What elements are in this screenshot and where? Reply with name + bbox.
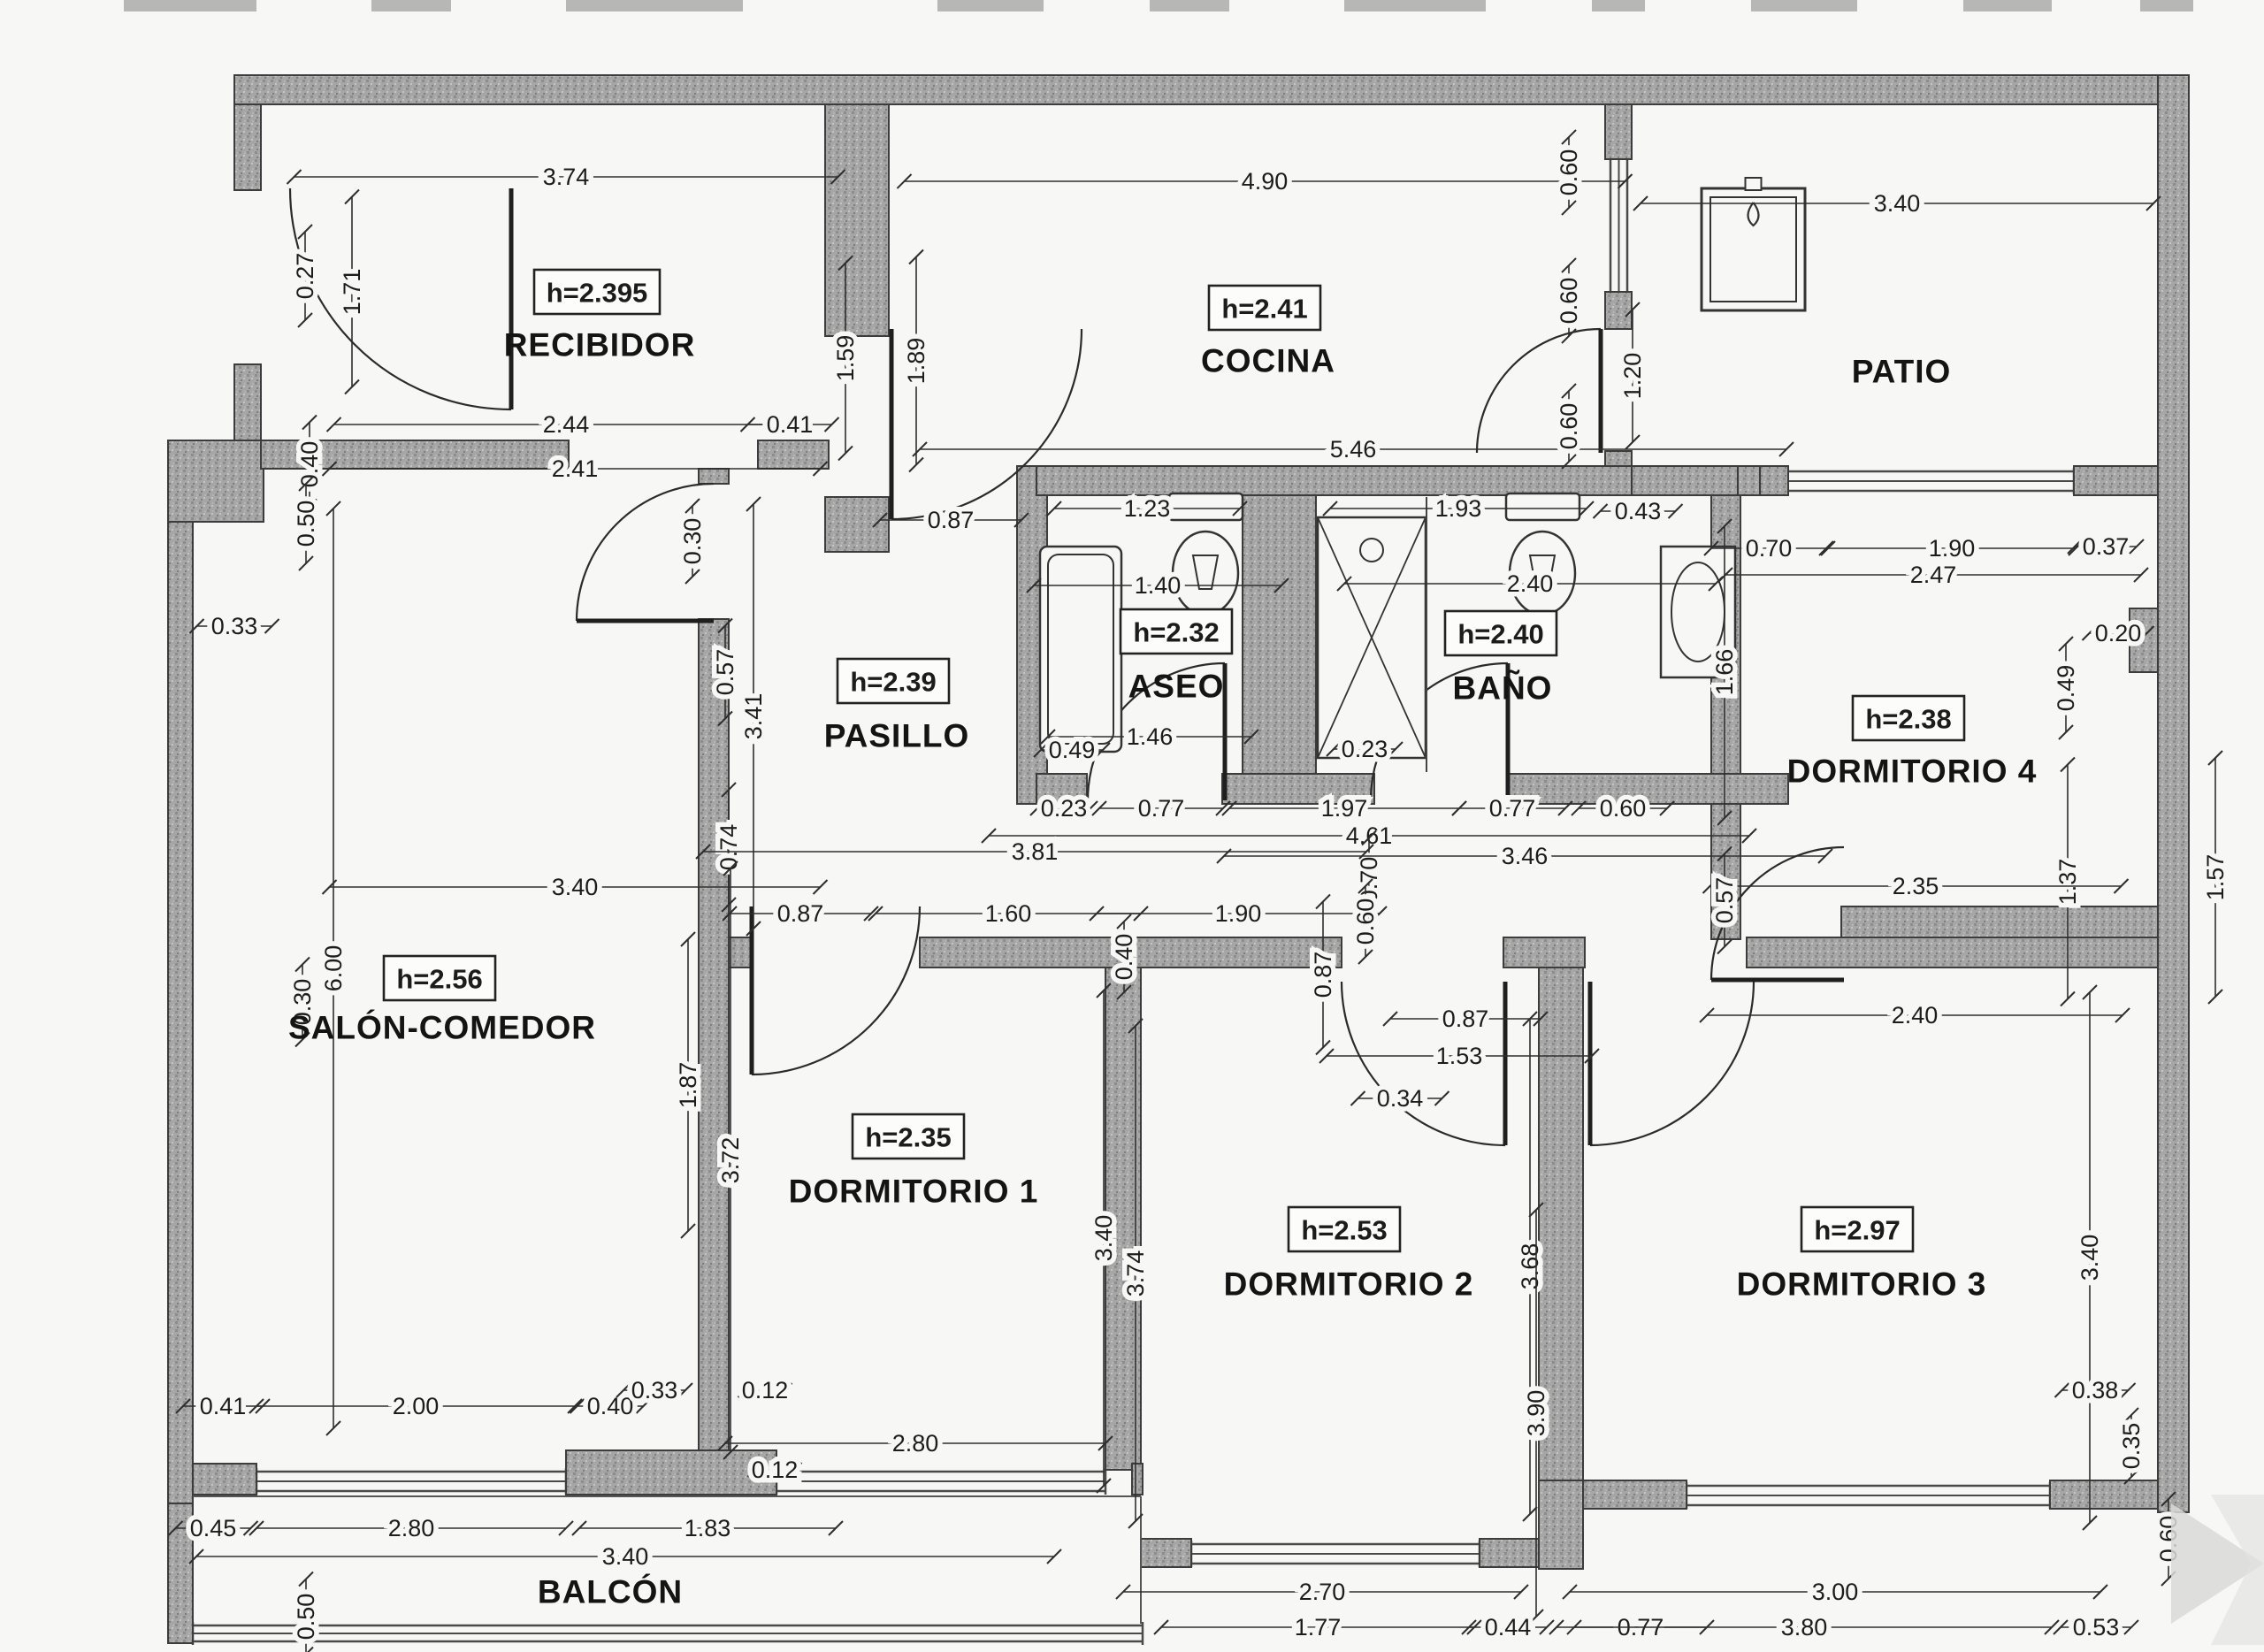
height-badge: h=2.97 — [1814, 1215, 1900, 1246]
wall — [1841, 906, 2158, 937]
wall — [699, 619, 729, 1470]
dimension-label: 0.60 — [1600, 795, 1647, 822]
wall — [1480, 1539, 1539, 1567]
dimension-label: 2.80 — [388, 1515, 435, 1541]
room-label: DORMITORIO 4 — [1787, 753, 2038, 790]
dimension-label: 0.87 — [777, 900, 824, 927]
dimension-label: 0.60 — [1556, 403, 1582, 450]
dimension-label: 0.27 — [292, 253, 318, 300]
room-label: PATIO — [1852, 354, 1952, 390]
wall — [168, 440, 264, 522]
toilet-icon — [1506, 493, 1579, 520]
room-label: PASILLO — [824, 718, 970, 754]
dimension-label: 1.53 — [1436, 1043, 1483, 1069]
dimension-label: 3.40 — [602, 1543, 649, 1570]
dimension-label: 3.40 — [2077, 1235, 2103, 1281]
dimension-label: 2.00 — [393, 1393, 440, 1419]
dimension-label: 3.80 — [1781, 1614, 1828, 1641]
dimension-label: 0.45 — [190, 1515, 237, 1541]
wall — [1503, 937, 1585, 967]
dimension-label: 3.72 — [717, 1137, 744, 1184]
dimension-label: 3.90 — [1523, 1390, 1549, 1437]
dimension-label: 0.50 — [293, 501, 319, 547]
dimension-label: 1.71 — [339, 269, 365, 316]
wall — [1539, 1480, 1583, 1569]
wall — [234, 104, 261, 190]
dimension-label: 0.33 — [211, 613, 258, 639]
wall — [1747, 937, 2158, 967]
room-label: COCINA — [1201, 343, 1335, 379]
dimension-label: 3.81 — [1012, 838, 1059, 865]
dimension-label: 0.12 — [752, 1457, 799, 1483]
dimension-label: 1.20 — [1619, 353, 1646, 400]
scan-artifact — [2140, 0, 2193, 11]
height-badge: h=2.35 — [865, 1122, 951, 1153]
dimension-label: 1.89 — [903, 338, 929, 385]
dimension-label: 0.41 — [200, 1393, 247, 1419]
scan-artifact — [124, 0, 256, 11]
patio-sink-icon — [1702, 188, 1805, 310]
room-label: ASEO — [1128, 669, 1225, 705]
dimension-label: 3.40 — [1090, 1215, 1117, 1262]
dimension-label: 0.70 — [1356, 857, 1382, 904]
dimension-label: 3.74 — [543, 164, 590, 190]
dimension-label: 0.60 — [1352, 899, 1379, 945]
dimension-label: 0.38 — [2072, 1377, 2119, 1403]
floor-plan: Plano acotado de vivienda — distribución… — [0, 0, 2264, 1652]
dimension-label: 0.20 — [2095, 620, 2142, 646]
dimension-label: 0.44 — [1485, 1614, 1532, 1641]
dimension-label: 1.90 — [1929, 535, 1976, 562]
scan-artifact — [1150, 0, 1229, 11]
dimension-label: 2.35 — [1893, 873, 1939, 899]
room-label: SALÓN-COMEDOR — [288, 1009, 596, 1046]
wall — [1711, 466, 1740, 939]
wall — [1583, 1480, 1687, 1509]
height-badge: h=2.32 — [1133, 617, 1219, 648]
dimension-label: 2.40 — [1892, 1002, 1939, 1029]
entrance-door-arc — [290, 188, 511, 409]
wall — [2074, 466, 2158, 495]
dimension-label: 1.87 — [675, 1062, 701, 1109]
wall — [1132, 1464, 1143, 1495]
wall — [1632, 466, 1740, 495]
room-label: RECIBIDOR — [504, 327, 696, 363]
height-badge: h=2.53 — [1301, 1215, 1387, 1246]
dimension-label: 0.33 — [631, 1377, 678, 1403]
dimension-label: 0.57 — [712, 649, 738, 696]
dimension-label: 1.77 — [1295, 1614, 1342, 1641]
floor-plan-canvas: Plano acotado de vivienda — distribución… — [0, 0, 2264, 1652]
dimension-label: 3.41 — [740, 693, 767, 740]
dimension-label: 0.49 — [1049, 737, 1096, 763]
scan-artifact — [1344, 0, 1486, 11]
dimension-label: 0.70 — [1746, 535, 1793, 562]
scan-artifact — [566, 0, 743, 11]
dimension-label: 1.46 — [1127, 723, 1174, 750]
scan-artifact — [1592, 0, 1645, 11]
wall — [1605, 451, 1632, 466]
dimension-label: 1.23 — [1124, 495, 1171, 522]
dimension-label: 0.87 — [928, 507, 975, 533]
dimension-label: 1.60 — [985, 900, 1032, 927]
wall — [2050, 1480, 2158, 1509]
wall — [1605, 104, 1632, 159]
dimension-label: 4.90 — [1242, 168, 1289, 195]
dimension-label: 0.50 — [293, 1594, 319, 1641]
height-badge: h=2.41 — [1221, 294, 1307, 325]
dimension-label: 1.57 — [2202, 854, 2229, 901]
room-label: BAÑO — [1453, 669, 1553, 707]
dimension-label: 0.87 — [1442, 1006, 1489, 1032]
dimension-label: 5.46 — [1330, 436, 1377, 463]
dimension-label: 1.97 — [1321, 795, 1368, 822]
dimension-label: 0.30 — [679, 518, 706, 565]
wall — [1243, 495, 1316, 804]
dimension-label: 1.66 — [1711, 649, 1738, 696]
wall — [168, 522, 193, 1503]
dimension-label: 1.83 — [685, 1515, 731, 1541]
dimension-label: 0.23 — [1041, 795, 1088, 822]
wall — [1738, 466, 1760, 495]
dimension-label: 3.46 — [1502, 843, 1549, 869]
dimension-label: 1.90 — [1215, 900, 1262, 927]
dimension-label: 0.77 — [1138, 795, 1185, 822]
dimension-label: 0.74 — [715, 824, 742, 871]
dimension-label: 3.40 — [1874, 190, 1921, 217]
dimension-label: 0.40 — [587, 1393, 634, 1419]
dimension-label: 0.60 — [1556, 149, 1582, 196]
wall — [1141, 1539, 1191, 1567]
dormitorio1-door-arc — [752, 906, 920, 1075]
patio-door-arc — [1477, 329, 1601, 453]
room-label: DORMITORIO 2 — [1224, 1266, 1474, 1303]
dimension-label: 0.87 — [1310, 952, 1336, 998]
wall — [825, 497, 889, 552]
dimension-label: 3.40 — [552, 874, 599, 900]
wall — [729, 937, 752, 967]
dimension-label: 2.47 — [1910, 562, 1957, 588]
wall — [234, 75, 2176, 104]
dimension-label: 6.00 — [320, 945, 347, 992]
toilet-icon — [1169, 493, 1243, 520]
patio-sink-tap-icon — [1746, 178, 1762, 190]
dormitorio3-door-arc — [1590, 982, 1754, 1145]
wall — [234, 364, 261, 449]
dimension-label: 0.34 — [1377, 1085, 1424, 1112]
dimension-label: 0.49 — [2053, 665, 2079, 712]
room-label: BALCÓN — [538, 1573, 683, 1610]
dimension-label: 2.80 — [892, 1430, 939, 1457]
scan-artifact — [371, 0, 451, 11]
dimension-label: 0.57 — [1711, 877, 1738, 924]
height-badge: h=2.40 — [1457, 619, 1543, 650]
wall — [1508, 774, 1788, 804]
toilet-icon — [1173, 532, 1238, 615]
dimension-label: 0.53 — [2073, 1614, 2120, 1641]
bathtub-icon — [1040, 547, 1121, 752]
dimension-label: 0.41 — [767, 411, 814, 438]
dimension-label: 0.12 — [742, 1377, 789, 1403]
dimension-label: 2.70 — [1299, 1579, 1346, 1605]
wall — [2158, 75, 2189, 1512]
dimension-label: 3.74 — [1122, 1250, 1149, 1297]
dimension-label: 0.43 — [1615, 498, 1662, 524]
shower-drain-icon — [1360, 539, 1383, 562]
dimension-label: 2.44 — [543, 411, 590, 438]
scan-artifact — [1963, 0, 2052, 11]
wall — [825, 104, 889, 336]
height-badge: h=2.56 — [396, 964, 482, 995]
room-label: DORMITORIO 1 — [789, 1174, 1039, 1210]
dimension-label: 1.59 — [832, 335, 859, 382]
dimension-label: 3.00 — [1812, 1579, 1859, 1605]
dimension-label: 1.93 — [1435, 495, 1482, 522]
dimension-label: 1.37 — [2054, 859, 2081, 906]
wall — [1605, 292, 1632, 329]
wall — [566, 1450, 776, 1495]
dimension-label: 2.40 — [1507, 570, 1554, 597]
room-label: DORMITORIO 3 — [1737, 1266, 1987, 1303]
dimension-label: 0.77 — [1489, 795, 1536, 822]
dimension-label: 1.40 — [1135, 572, 1182, 599]
wall — [193, 1464, 256, 1495]
height-badge: h=2.39 — [850, 667, 936, 698]
scan-artifact — [937, 0, 1044, 11]
wall — [758, 440, 829, 469]
dimension-label: 0.40 — [1111, 934, 1137, 981]
dimension-label: 0.35 — [2118, 1423, 2145, 1470]
dimension-label: 0.37 — [2083, 533, 2130, 560]
dimension-label: 0.23 — [1342, 736, 1388, 762]
dimension-label: 0.60 — [1556, 278, 1582, 325]
height-badge: h=2.38 — [1865, 704, 1951, 735]
height-badge: h=2.395 — [547, 278, 648, 309]
scan-artifact — [1751, 0, 1857, 11]
wall — [699, 469, 729, 484]
dimension-label: 3.68 — [1517, 1243, 1543, 1290]
dimension-label: 2.41 — [552, 455, 599, 482]
